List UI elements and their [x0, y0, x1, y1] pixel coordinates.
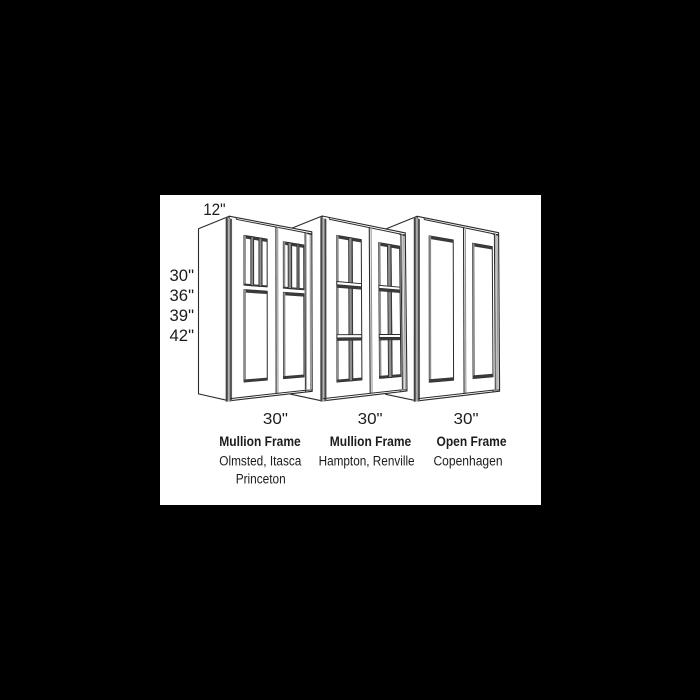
svg-text:30": 30"	[170, 267, 195, 285]
svg-text:39": 39"	[170, 307, 195, 325]
svg-text:Hampton, Renville: Hampton, Renville	[319, 453, 415, 469]
svg-text:Mullion Frame: Mullion Frame	[219, 434, 300, 450]
svg-text:30": 30"	[454, 411, 479, 428]
svg-text:Princeton: Princeton	[236, 471, 286, 487]
svg-text:30": 30"	[358, 411, 383, 428]
svg-text:30": 30"	[263, 411, 288, 428]
svg-text:36": 36"	[170, 287, 195, 305]
svg-text:12": 12"	[203, 201, 226, 219]
svg-text:Olmsted, Itasca: Olmsted, Itasca	[219, 453, 301, 469]
svg-text:42": 42"	[170, 327, 195, 345]
svg-text:Mullion Frame: Mullion Frame	[330, 434, 411, 450]
svg-text:Open Frame: Open Frame	[437, 434, 507, 450]
svg-text:Copenhagen: Copenhagen	[433, 453, 502, 469]
